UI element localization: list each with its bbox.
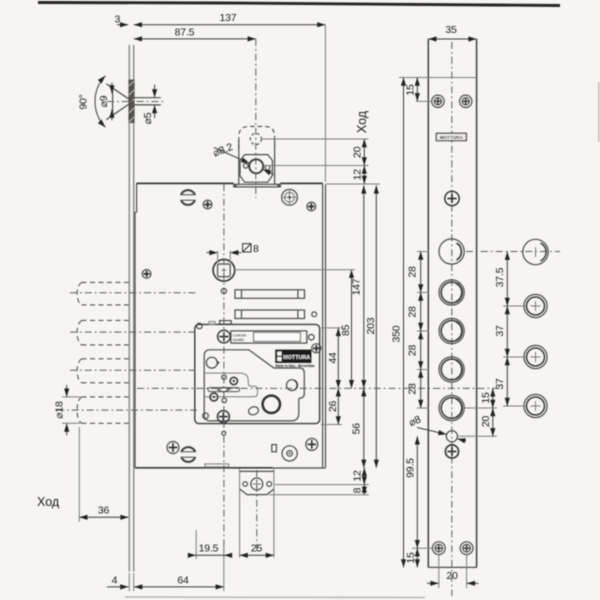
svg-text:44: 44 bbox=[327, 352, 339, 364]
svg-text:37: 37 bbox=[494, 325, 506, 337]
svg-text:⌀5: ⌀5 bbox=[142, 112, 154, 124]
svg-text:28: 28 bbox=[406, 383, 418, 395]
svg-text:25: 25 bbox=[251, 542, 263, 554]
svg-text:⌀18: ⌀18 bbox=[53, 401, 65, 419]
svg-text:MOTTURA: MOTTURA bbox=[283, 355, 310, 361]
svg-text:8: 8 bbox=[253, 243, 259, 255]
svg-text:Qualità: Qualità bbox=[233, 338, 244, 342]
svg-text:12: 12 bbox=[352, 470, 364, 482]
svg-text:28: 28 bbox=[406, 306, 418, 318]
svg-text:37.5: 37.5 bbox=[494, 267, 506, 287]
svg-text:99.5: 99.5 bbox=[404, 458, 416, 478]
svg-text:Ход: Ход bbox=[355, 110, 369, 133]
svg-text:⌀9: ⌀9 bbox=[98, 95, 110, 107]
svg-text:36: 36 bbox=[98, 505, 110, 517]
svg-text:56: 56 bbox=[351, 423, 363, 435]
svg-text:Controllo: Controllo bbox=[233, 333, 247, 337]
svg-text:137: 137 bbox=[220, 12, 237, 24]
svg-text:28: 28 bbox=[406, 345, 418, 357]
svg-text:12: 12 bbox=[352, 169, 364, 181]
svg-text:8: 8 bbox=[352, 487, 364, 493]
svg-text:15: 15 bbox=[480, 392, 492, 404]
svg-text:MOTTURA: MOTTURA bbox=[440, 135, 464, 140]
svg-text:28: 28 bbox=[406, 266, 418, 278]
svg-text:20: 20 bbox=[352, 146, 364, 158]
svg-text:26: 26 bbox=[327, 401, 339, 413]
svg-text:4: 4 bbox=[112, 575, 118, 587]
svg-text:350: 350 bbox=[390, 325, 402, 342]
svg-text:15: 15 bbox=[405, 552, 417, 564]
svg-text:85: 85 bbox=[340, 324, 352, 336]
svg-text:64: 64 bbox=[177, 575, 189, 587]
svg-text:15: 15 bbox=[405, 84, 417, 96]
svg-text:19.5: 19.5 bbox=[199, 542, 219, 554]
svg-text:20: 20 bbox=[446, 570, 458, 582]
svg-text:Ход: Ход bbox=[37, 495, 60, 509]
svg-text:87.5: 87.5 bbox=[175, 27, 195, 39]
svg-text:147: 147 bbox=[351, 278, 363, 295]
svg-text:Made in Italy - Brevettato: Made in Italy - Brevettato bbox=[276, 364, 315, 368]
svg-text:90°: 90° bbox=[77, 94, 89, 109]
svg-text:203: 203 bbox=[365, 317, 377, 334]
svg-text:20: 20 bbox=[480, 416, 492, 428]
svg-text:37: 37 bbox=[494, 378, 506, 390]
svg-text:35: 35 bbox=[445, 24, 457, 36]
svg-text:3: 3 bbox=[114, 14, 120, 26]
